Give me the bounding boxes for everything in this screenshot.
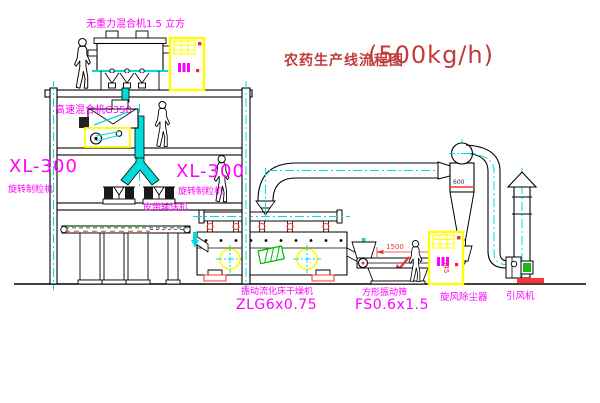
belt-conveyor-drawing <box>61 226 199 284</box>
dimension-cyclone: 600 <box>453 179 464 186</box>
label-xl300-left: XL-300 <box>9 158 78 176</box>
process-flow-diagram: 农药生产线流程图 (500kg/h) 无重力混合机1.5 立方 高速混合机G35… <box>0 0 600 403</box>
label-belt-conveyor: 皮带输送机 <box>143 204 188 213</box>
label-dryer-model: ZLG6x0.75 <box>236 298 317 312</box>
label-granulator-left: 旋转制粒机 <box>8 186 53 195</box>
control-cabinet-1 <box>170 38 204 90</box>
label-dryer-name: 振动流化床干燥机 <box>241 288 313 297</box>
granulator-left-drawing <box>103 187 135 204</box>
label-screen-model: FS0.6x1.5 <box>355 298 429 312</box>
label-xl300-right: XL-300 <box>176 163 245 181</box>
exhaust-duct <box>256 163 448 220</box>
label-fan: 引风机 <box>506 292 535 302</box>
worker-figure-1 <box>75 39 91 89</box>
label-high-speed-mixer: 高速混合机G350 <box>55 106 132 116</box>
worker-figure-2 <box>155 101 169 146</box>
control-cabinet-2 <box>429 232 463 284</box>
label-gravity-free-mixer: 无重力混合机1.5 立方 <box>86 20 185 30</box>
label-granulator-right: 旋转制粒机 <box>178 188 223 197</box>
dimension-screen-length: 1500 <box>386 243 404 251</box>
fluid-bed-dryer-drawing <box>193 210 362 281</box>
label-cyclone: 旋风除尘器 <box>440 293 488 303</box>
granulator-right-drawing <box>143 187 175 204</box>
diagram-title-capacity: (500kg/h) <box>368 41 494 69</box>
dimension-screen-height: 345 <box>442 260 450 273</box>
induced-draft-fan-drawing <box>506 257 544 283</box>
